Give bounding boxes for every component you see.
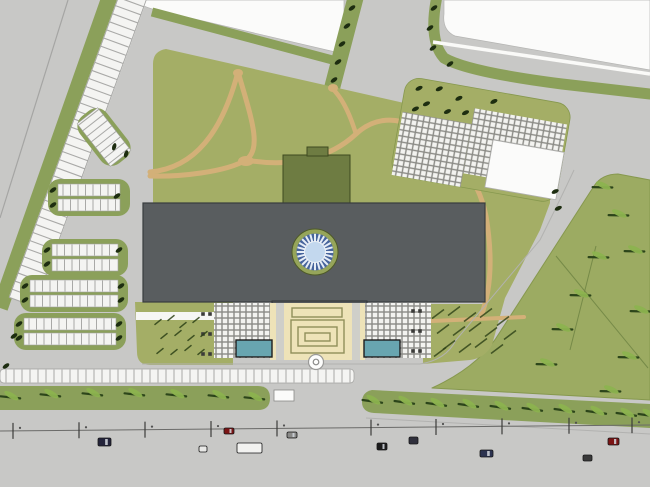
site-plan <box>0 0 650 487</box>
pole-dot <box>575 422 577 424</box>
pole-dot <box>283 424 285 426</box>
site-plan-drawing <box>0 0 650 487</box>
pool-left <box>236 340 272 357</box>
paver-grid-a <box>392 112 472 187</box>
bollard <box>418 349 422 353</box>
bollard <box>208 312 212 316</box>
parking-bay <box>48 179 130 216</box>
pole-dot <box>217 425 219 427</box>
path-node <box>233 69 243 77</box>
bollard <box>418 329 422 333</box>
dome-rotunda <box>292 229 338 275</box>
parking-row-band <box>0 369 354 383</box>
car <box>224 428 234 434</box>
pole-dot <box>151 426 153 428</box>
bollard <box>201 312 205 316</box>
street-parking-row <box>0 369 354 383</box>
plaza-court-beige <box>270 303 365 360</box>
bus-stop-marking <box>274 390 294 401</box>
pole-dot <box>19 427 21 429</box>
plaza-strip-right <box>352 303 360 360</box>
plaza-strip-left <box>276 303 284 360</box>
car <box>409 437 418 444</box>
car <box>480 450 493 457</box>
car <box>608 438 619 445</box>
bollard <box>208 332 212 336</box>
car <box>377 443 387 450</box>
pole-dot <box>638 421 640 423</box>
pole-dot <box>508 422 510 424</box>
bollard <box>411 329 415 333</box>
parking-bay <box>42 239 128 276</box>
bollard <box>208 352 212 356</box>
car <box>98 438 111 446</box>
car <box>199 446 207 452</box>
building-north-wing <box>283 155 350 203</box>
building-north-wing-step <box>307 147 328 156</box>
bollard <box>418 309 422 313</box>
pool-right <box>364 340 400 357</box>
bollard <box>411 309 415 313</box>
parking-bay <box>20 275 128 312</box>
car <box>237 443 262 453</box>
fountain <box>309 355 324 370</box>
parking-bay <box>14 313 126 350</box>
dome-skylight <box>305 242 326 263</box>
car <box>287 432 297 438</box>
path-node <box>328 84 338 92</box>
car <box>583 455 592 461</box>
pole-dot <box>377 423 379 425</box>
pole-dot <box>85 426 87 428</box>
pole-dot <box>442 423 444 425</box>
bollard <box>411 349 415 353</box>
path-node <box>238 156 254 166</box>
bollard <box>201 352 205 356</box>
